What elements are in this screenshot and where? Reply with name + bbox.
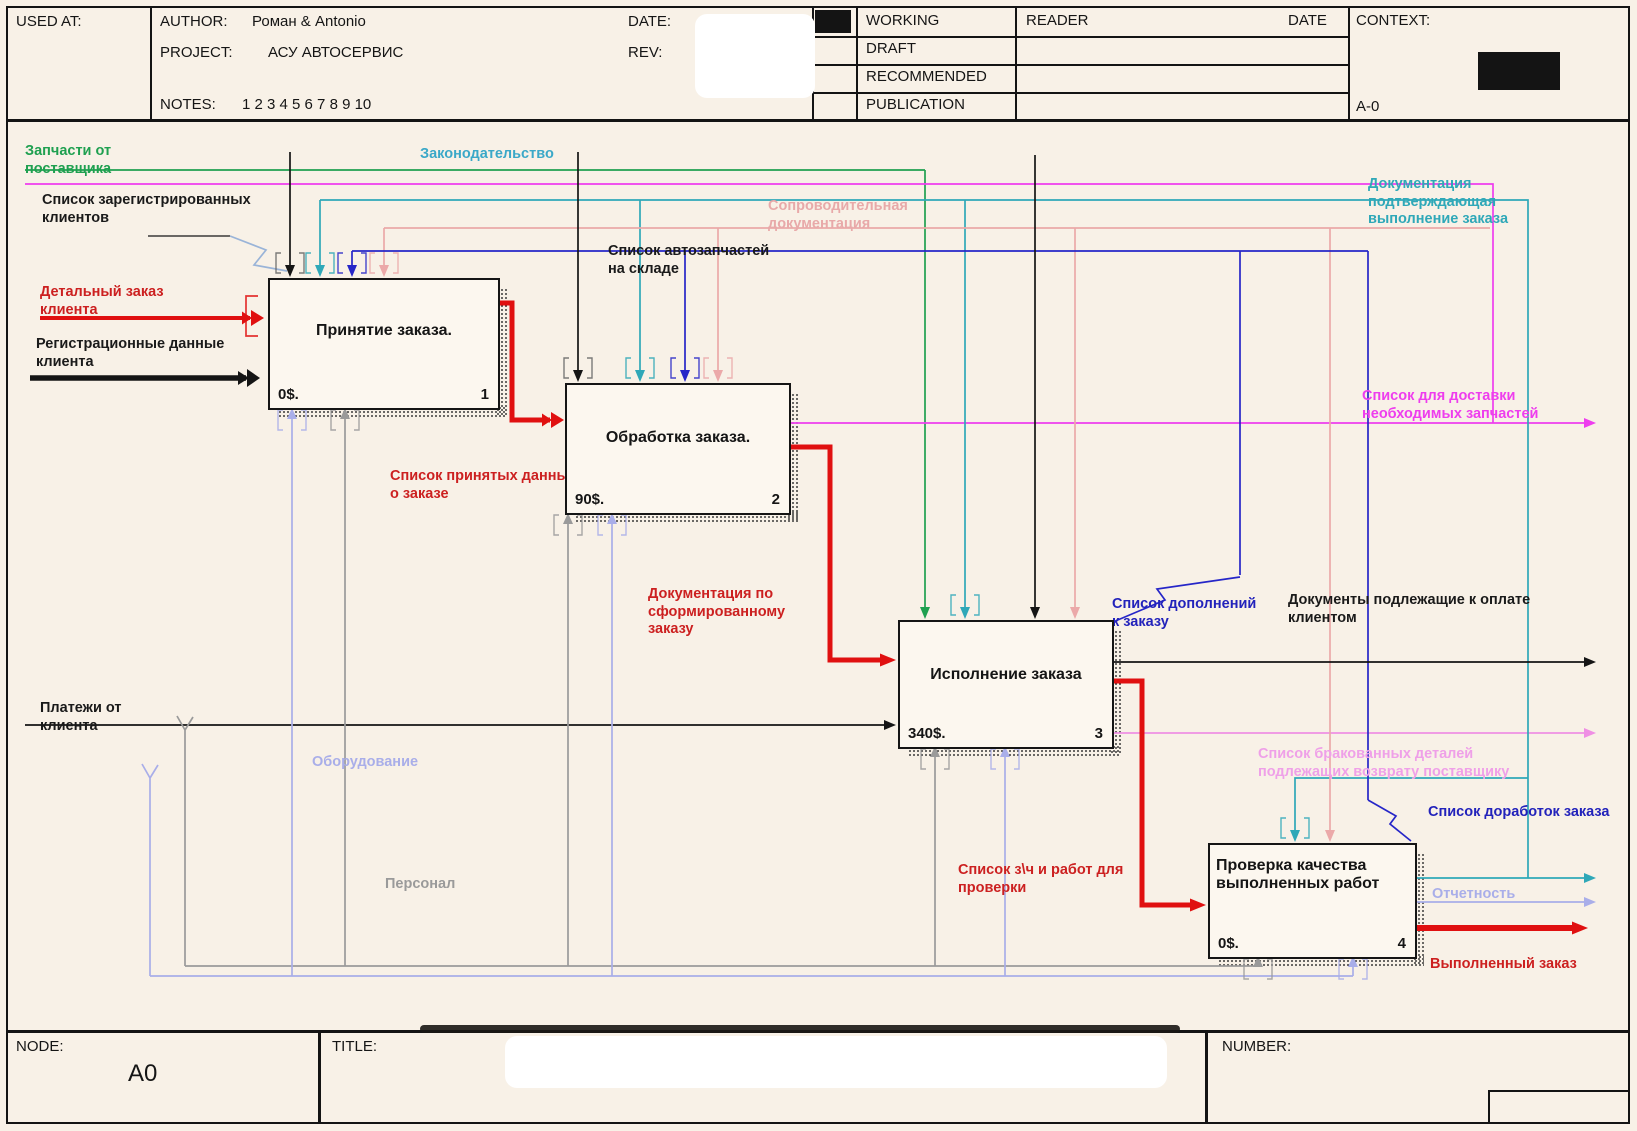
arrow-label-equipment: Оборудование [312, 754, 482, 772]
header-bottom-line [6, 119, 1629, 122]
number-label: NUMBER: [1222, 1038, 1291, 1055]
header-divider-1 [150, 6, 152, 120]
arrow-label-formed-order-doc: Документация по сформированному заказу [648, 586, 833, 639]
activity-3-number: 3 [1095, 725, 1103, 742]
activity-4-cost: 0$. [1218, 935, 1239, 952]
used-at-label: USED AT: [16, 13, 82, 30]
arrow-label-parts-supplier: Запчасти от поставщика [25, 143, 185, 178]
status-publication: PUBLICATION [866, 96, 965, 113]
project-value: АСУ АВТОСЕРВИС [268, 44, 403, 61]
rev-label: REV: [628, 44, 662, 61]
footer-top-smear [420, 1025, 1180, 1033]
arrow-label-rework-list: Список доработок заказа [1428, 804, 1613, 822]
arrow-label-delivery-list: Список для доставки необходимых запчасте… [1362, 388, 1617, 423]
arrow-label-client-payments: Платежи от клиента [40, 700, 175, 735]
context-label: CONTEXT: [1356, 12, 1430, 29]
date-label: DATE: [628, 13, 671, 30]
activity-box-2[interactable]: Обработка заказа. 90$. 2 [565, 383, 791, 515]
activity-1-title: Принятие заказа. [276, 322, 492, 340]
project-label: PROJECT: [160, 44, 233, 61]
activity-2-number: 2 [772, 491, 780, 508]
header-divider-3 [856, 6, 858, 120]
arrow-label-personnel: Персонал [385, 876, 505, 894]
node-label: NODE: [16, 1038, 64, 1055]
arrow-label-registered-clients: Список зарегистрированных клиентов [42, 192, 257, 227]
arrow-label-reporting: Отчетность [1432, 886, 1552, 904]
activity-box-3[interactable]: Исполнение заказа 340$. 3 [898, 620, 1114, 749]
footer-divider-2 [1205, 1030, 1208, 1123]
context-thumbnail[interactable] [1478, 52, 1560, 90]
header-row-line-1 [812, 36, 1350, 38]
arrow-label-accompanying-doc: Сопроводительная документация [768, 198, 958, 233]
arrow-label-registration-data: Регистрационные данные клиента [36, 336, 236, 371]
activity-4-number: 4 [1398, 935, 1406, 952]
author-label: AUTHOR: [160, 13, 228, 30]
activity-box-1[interactable]: Принятие заказа. 0$. 1 [268, 278, 500, 410]
arrow-label-legislation: Законодательство [420, 146, 630, 164]
notes-numbers: 1 2 3 4 5 6 7 8 9 10 [242, 96, 371, 113]
activity-2-title: Обработка заказа. [573, 429, 783, 447]
header-row-line-2 [812, 64, 1350, 66]
activity-1-cost: 0$. [278, 386, 299, 403]
arrow-label-stock-list: Список автозапчастей на складе [608, 243, 788, 278]
arrow-label-accepted-data: Список принятых данных о заказе [390, 468, 580, 503]
title-label: TITLE: [332, 1038, 377, 1055]
arrow-label-completed-order: Выполненный заказ [1430, 956, 1580, 974]
notes-label: NOTES: [160, 96, 216, 113]
status-recommended: RECOMMENDED [866, 68, 987, 85]
arrow-label-check-list: Список з\ч и работ для проверки [958, 862, 1133, 897]
header-divider-4 [1015, 6, 1017, 120]
arrow-label-confirming-doc: Документация подтверждающая выполнение з… [1368, 176, 1543, 229]
number-corner-box [1488, 1090, 1630, 1124]
idef0-diagram-page: USED AT: AUTHOR: Роман & Antonio PROJECT… [0, 0, 1637, 1131]
arrow-label-defective-parts: Список бракованных деталей подлежащих во… [1258, 746, 1538, 781]
date-rev-whiteout [695, 14, 815, 98]
author-value: Роман & Antonio [252, 13, 366, 30]
status-working: WORKING [866, 12, 939, 29]
header-divider-5 [1348, 6, 1350, 120]
reader-label: READER [1026, 12, 1089, 29]
status-draft: DRAFT [866, 40, 916, 57]
arrow-label-detailed-order: Детальный заказ клиента [40, 284, 220, 319]
context-node-ref: A-0 [1356, 98, 1379, 115]
arrow-label-payment-docs: Документы подлежащие к оплате клиентом [1288, 592, 1543, 627]
title-whiteout [505, 1036, 1167, 1088]
working-checkbox-filled[interactable] [815, 10, 851, 33]
activity-1-number: 1 [481, 386, 489, 403]
node-value: A0 [128, 1060, 157, 1088]
header-row-line-3 [812, 92, 1350, 94]
activity-3-cost: 340$. [908, 725, 946, 742]
activity-4-title: Проверка качества выполненных работ [1216, 857, 1409, 894]
activity-3-title: Исполнение заказа [906, 666, 1106, 684]
arrow-label-additions-list: Список дополнений к заказу [1112, 596, 1257, 631]
activity-2-cost: 90$. [575, 491, 604, 508]
footer-divider-1 [318, 1030, 321, 1123]
activity-box-4[interactable]: Проверка качества выполненных работ 0$. … [1208, 843, 1417, 959]
reader-date-label: DATE [1288, 12, 1327, 29]
